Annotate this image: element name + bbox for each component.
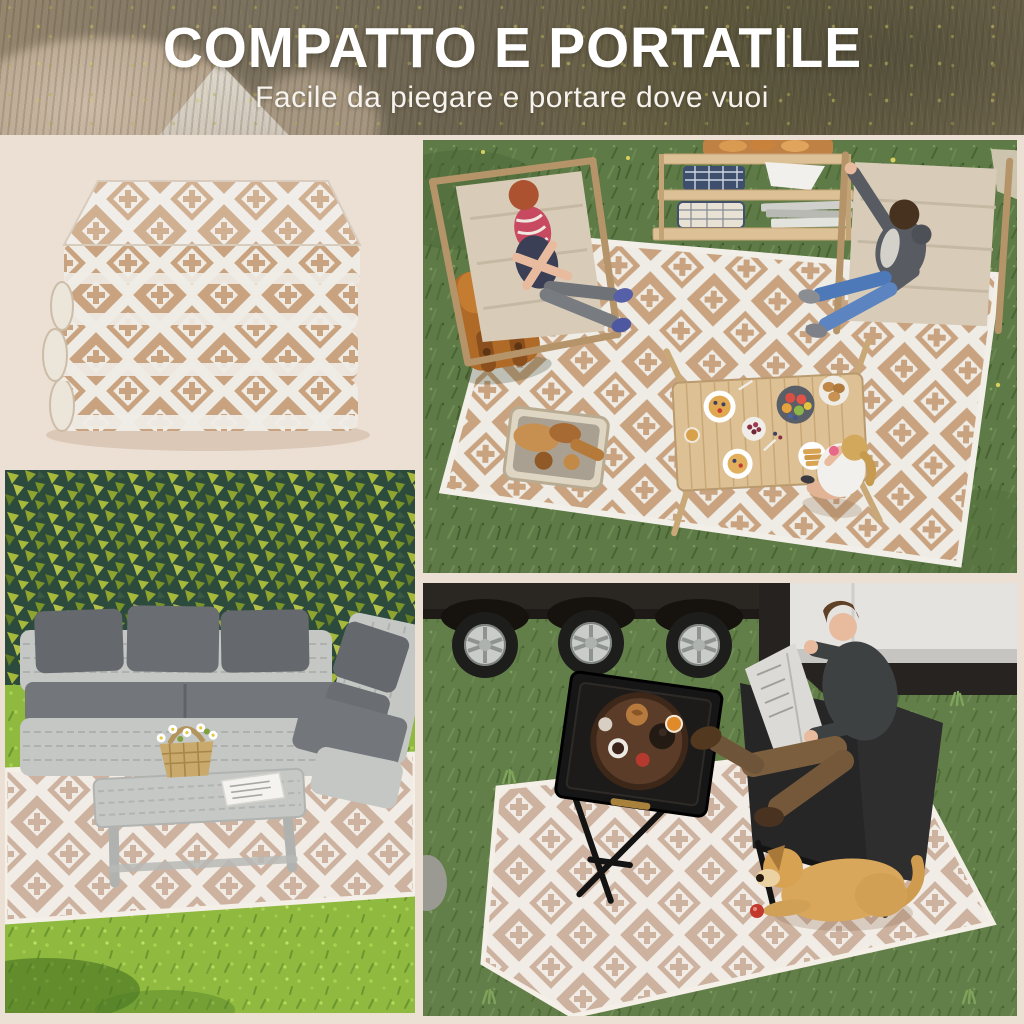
rug-layer: [50, 379, 358, 431]
product-poster: COMPATTO E PORTATILE Facile da piegare e…: [0, 0, 1024, 1024]
back-pillow: [34, 608, 124, 673]
rug-layer: [43, 329, 358, 381]
dog-nose: [756, 874, 764, 882]
header-text: COMPATTO E PORTATILE Facile da piegare e…: [0, 0, 1024, 135]
trailer-wheels: [452, 610, 732, 678]
rug-layer: [51, 281, 358, 331]
header-banner: COMPATTO E PORTATILE Facile da piegare e…: [0, 0, 1024, 135]
page-subtitle: Facile da piegare e portare dove vuoi: [255, 81, 769, 115]
panel-camping-photo: [423, 583, 1017, 1016]
wheel: [666, 612, 732, 678]
jam-jar: [685, 428, 700, 443]
orange-juice: [665, 715, 683, 733]
rug-top-layer: [64, 181, 360, 285]
panel-picnic-photo: [423, 140, 1017, 573]
back-pillow: [126, 605, 219, 673]
page-title: COMPATTO E PORTATILE: [162, 20, 861, 77]
wheel: [452, 612, 518, 678]
folded-rug: [43, 181, 370, 451]
panel-product-photo: [0, 135, 415, 470]
bread-basket: [503, 406, 610, 490]
woven-basket: [678, 202, 744, 228]
back-pillow: [220, 609, 309, 673]
storage-basket: [683, 166, 745, 190]
panel-patio-photo: [5, 470, 415, 1013]
wheel: [558, 610, 624, 676]
boot: [754, 807, 784, 827]
red-ball: [750, 904, 764, 918]
face: [829, 613, 857, 641]
